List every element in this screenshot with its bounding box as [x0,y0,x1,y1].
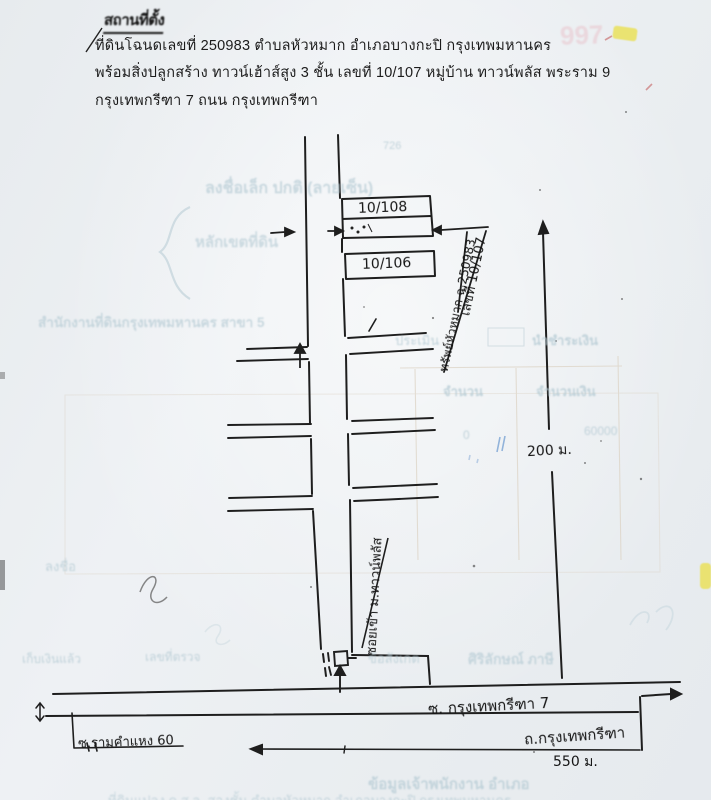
bleed-land-row: หลักเขตที่ดิน [195,230,278,254]
scanned-deed-location-map: สถานที่ตั้ง ที่ดินโฉนดเลขที่ 250983 ตำบล… [0,0,711,800]
correction-patch-right [700,563,711,589]
bleed-remark: ข้อสังเกต [368,648,420,669]
bleed-assess: ประเมิน [395,330,439,351]
header-line-2: พร้อมสิ่งปลูกสร้าง ทาวน์เฮ้าส์สูง 3 ชั้น… [95,61,610,84]
bleed-amount-header: จำนวนเงิน [536,381,596,402]
building-label-10-106: 10/106 [362,255,412,273]
bleed-bottom-line: ที่ดินแปลง ค.ส.ล. สองชั้น ตำบลหัวหมาก อำ… [108,790,511,800]
road-label-soi-ramkhamhaeng-60: ซ.รามคำแหง 60 [78,729,174,753]
distance-label-550m: 550 ม. [553,751,598,773]
header-line-3: กรุงเทพกรีฑา 7 ถนน กรุงเทพกรีฑา [95,89,318,112]
bleed-collected: เก็บเงินแล้ว [22,650,81,669]
sketch-map-svg [0,0,711,800]
bleed-amount-0: 0 [463,428,470,442]
subject-unit-marks [351,224,372,233]
blue-marks [469,436,505,463]
bleed-amount-60000: 60000 [584,424,617,438]
red-marks [605,36,652,90]
bleed-office-row: สำนักงานที่ดินกรุงเทพมหานคร สาขา 5 [38,311,264,333]
bleed-check-no: เลขที่ตรวจ [145,648,201,667]
bleed-number-726: 726 [383,140,401,152]
side-streets [228,333,438,511]
bleed-pink-number: 997 [559,19,603,51]
bleed-sign-row: ลงชื่อเล็ก ปกติ (ลายเซ็น) [205,176,373,201]
entrance-gate [328,651,356,692]
bleed-pay: นำชำระเงิน [532,330,598,351]
bleed-name-row: ศิริลักษณ์ ภาษี [468,649,554,671]
pencil-squiggle [140,577,167,603]
building-label-10-108: 10/108 [358,199,408,217]
bleed-sign2: ลงชื่อ [45,556,76,577]
distance-label-200m: 200 ม. [526,439,572,463]
header-line-1: ที่ดินโฉนดเลขที่ 250983 ตำบลหัวหมาก อำเภ… [95,34,551,57]
page-title: สถานที่ตั้ง [103,8,165,34]
bleed-qty-header: จำนวน [443,381,483,402]
